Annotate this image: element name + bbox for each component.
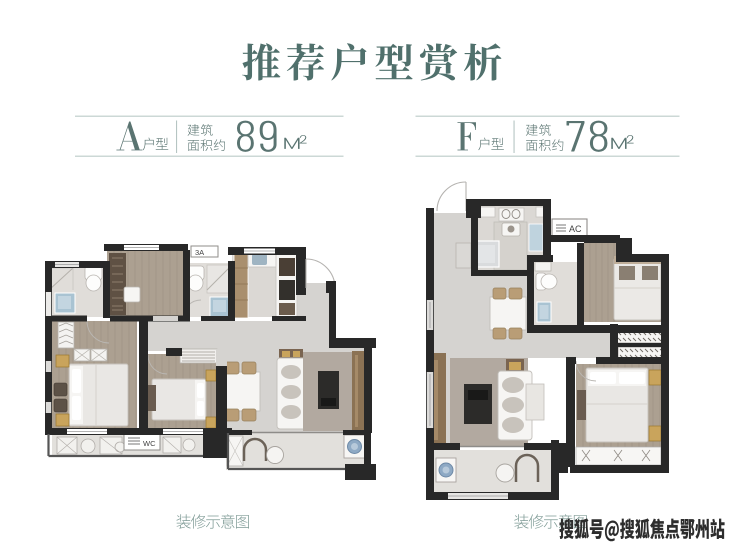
- svg-text:WC: WC: [143, 439, 156, 448]
- svg-text:AC: AC: [569, 224, 582, 234]
- svg-text:3A: 3A: [195, 248, 204, 257]
